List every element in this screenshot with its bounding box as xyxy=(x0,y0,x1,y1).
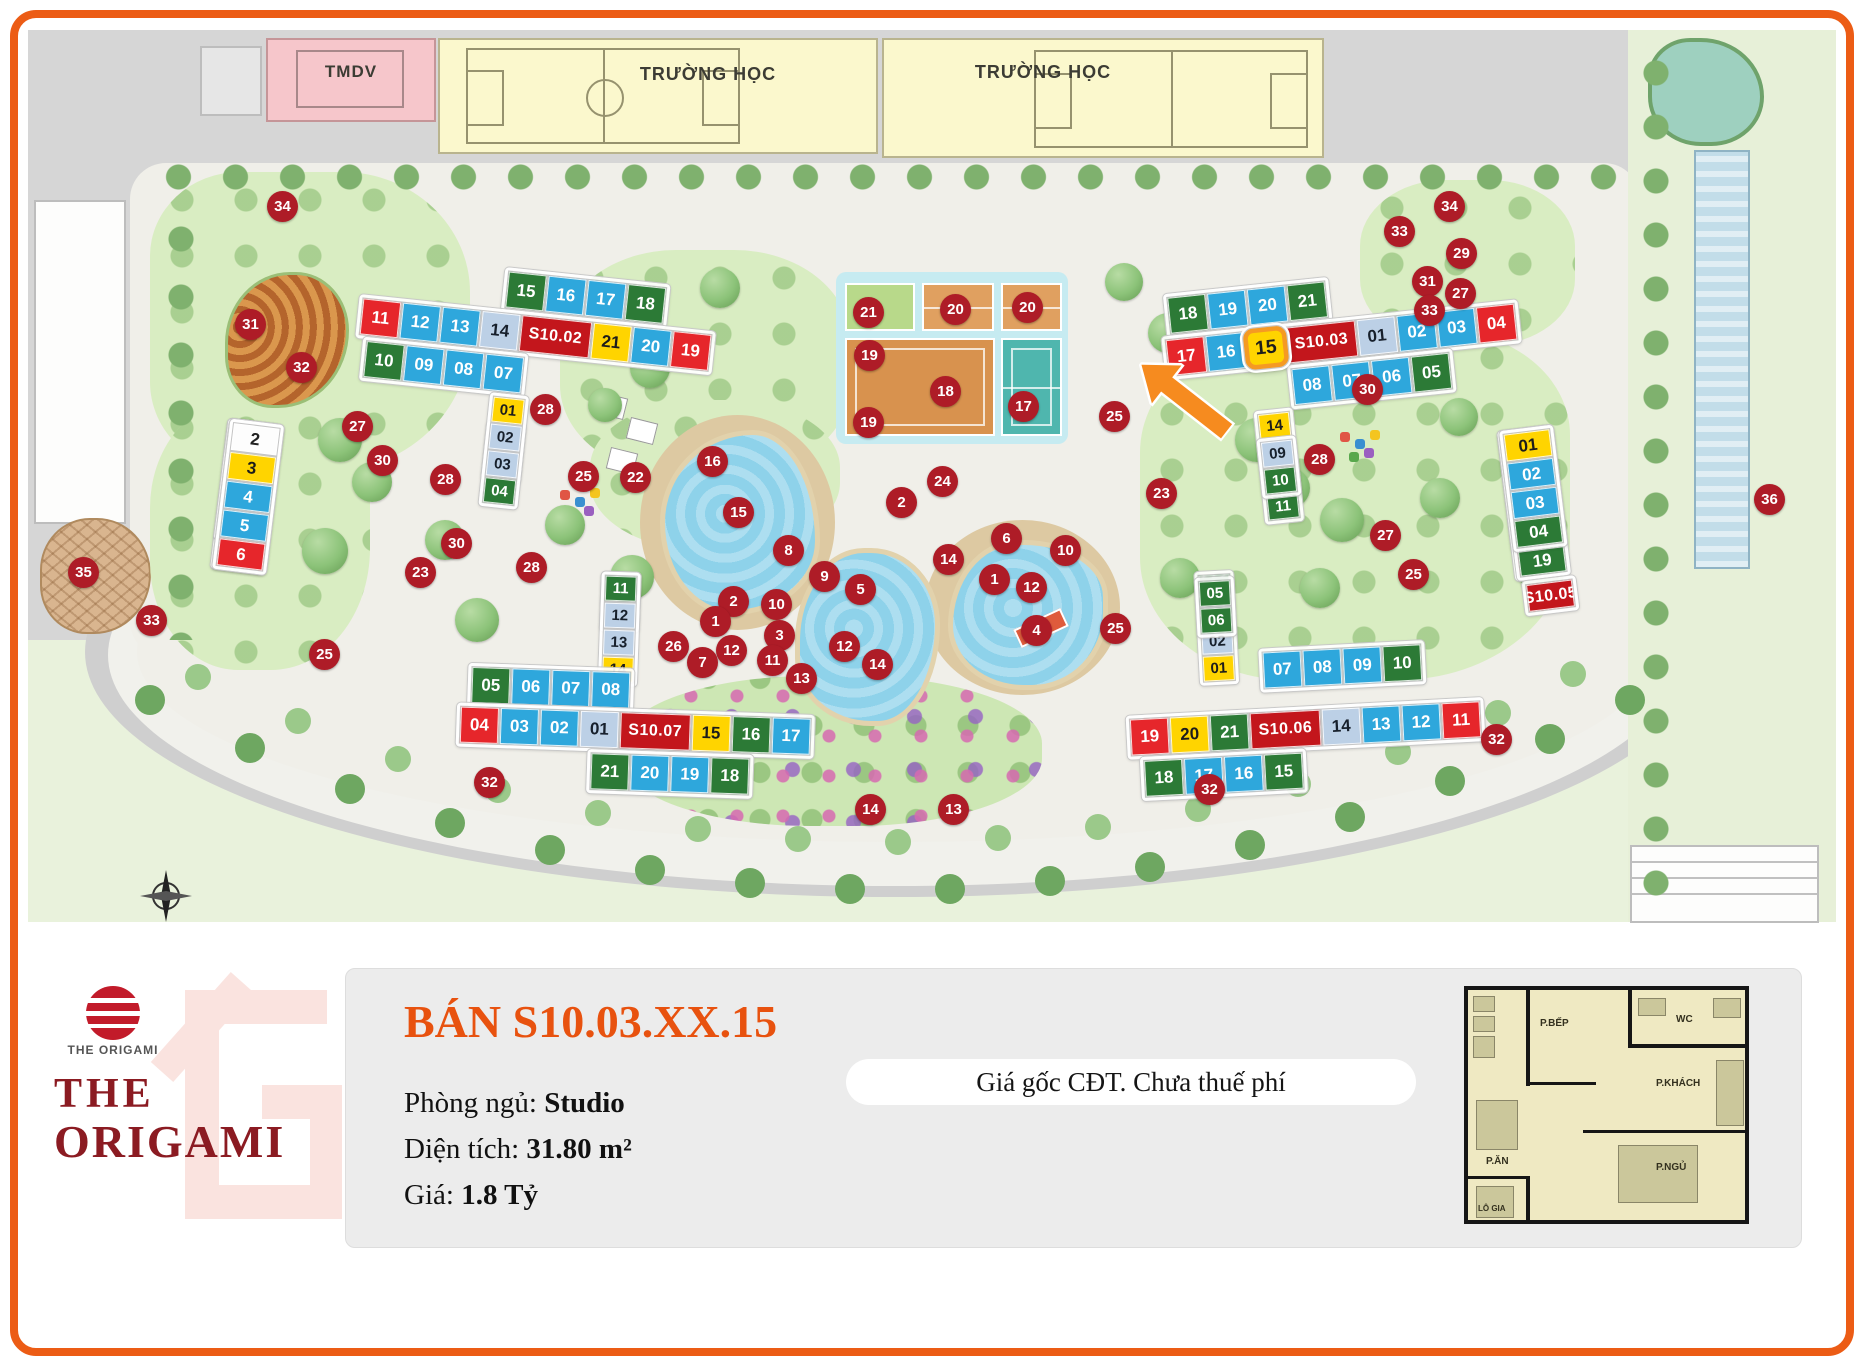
amenity-marker: 33 xyxy=(1414,295,1445,326)
unit-cell[interactable]: 12 xyxy=(604,603,636,629)
tree xyxy=(700,268,740,308)
unit-cell[interactable]: 03 xyxy=(1511,487,1560,519)
unit-cell[interactable]: 10 xyxy=(363,341,405,381)
amenity-marker: 24 xyxy=(927,466,958,497)
zone-school-1: TRƯỜNG HỌC xyxy=(438,38,878,154)
amenity-marker: 32 xyxy=(1194,774,1225,805)
field-label: Diện tích: xyxy=(404,1133,526,1165)
amenity-marker: 20 xyxy=(1012,292,1043,323)
unit-cell[interactable]: 16 xyxy=(1224,755,1264,793)
unit-cell[interactable]: 18 xyxy=(710,757,749,794)
room-label-bedroom: P.NGỦ xyxy=(1656,1162,1686,1173)
unit-cell[interactable]: 12 xyxy=(399,303,441,343)
amenity-marker: 11 xyxy=(757,645,788,676)
unit-cell[interactable]: 08 xyxy=(443,349,485,389)
field-label: Giá: xyxy=(404,1179,461,1211)
unit-cell[interactable]: 15 xyxy=(1242,325,1289,370)
unit-cell[interactable]: S10.06 xyxy=(1250,710,1322,750)
amenity-marker: 35 xyxy=(68,557,99,588)
zone-tmdv: TMDV xyxy=(266,38,436,122)
amenity-marker: 25 xyxy=(568,461,599,492)
unit-cell[interactable]: 17 xyxy=(585,280,627,320)
amenity-marker: 28 xyxy=(430,464,461,495)
amenity-marker: 33 xyxy=(1384,216,1415,247)
room-label-dining: P.ĂN xyxy=(1486,1156,1509,1167)
west-lot xyxy=(34,200,126,524)
amenity-marker: 30 xyxy=(1352,374,1383,405)
floorplan-thumbnail[interactable]: P.BẾP WC P.KHÁCH P.ĂN P.NGỦ LÔ GIA xyxy=(1464,986,1749,1224)
amenity-marker: 28 xyxy=(530,394,561,425)
page: TMDV TRƯỜNG HỌC TRƯỜNG HỌC xyxy=(0,0,1864,1366)
lagoon-pool-east xyxy=(948,540,1108,690)
amenity-marker: 31 xyxy=(1412,266,1443,297)
unit-cell[interactable]: 10 xyxy=(1382,644,1422,682)
amenity-marker: 14 xyxy=(933,544,964,575)
unit-cell[interactable]: 05 xyxy=(1411,353,1453,393)
amenity-marker: 26 xyxy=(658,631,689,662)
origami-logo-icon xyxy=(86,986,140,1040)
unit-cell[interactable]: 15 xyxy=(691,715,730,752)
north-west-lot xyxy=(200,46,262,116)
listing-panel: BÁN S10.03.XX.15 Phòng ngủ: Studio Diện … xyxy=(345,968,1802,1248)
listing-field: Phòng ngủ: Studio xyxy=(404,1087,625,1120)
room-label-kitchen: P.BẾP xyxy=(1540,1018,1569,1029)
unit-cell[interactable]: 08 xyxy=(1302,648,1342,686)
logo-small-text: THE ORIGAMI xyxy=(42,1044,184,1057)
unit-cell[interactable]: 07 xyxy=(483,354,525,394)
unit-cell[interactable]: 19 xyxy=(670,756,709,793)
amenity-marker: 28 xyxy=(1304,444,1335,475)
tree-row-west xyxy=(166,210,196,640)
field-value: Studio xyxy=(544,1087,625,1119)
tree-row-east xyxy=(1634,46,1678,902)
unit-cell[interactable]: 06 xyxy=(511,668,550,705)
amenity-marker: 14 xyxy=(862,649,893,680)
amenity-marker: 30 xyxy=(441,528,472,559)
unit-cell[interactable]: 08 xyxy=(1291,365,1333,405)
school-1-label: TRƯỜNG HỌC xyxy=(540,64,876,85)
listing-field: Giá: 1.8 Tỷ xyxy=(404,1179,538,1212)
amenity-marker: 25 xyxy=(309,639,340,670)
field-label: Phòng ngủ: xyxy=(404,1087,544,1119)
amenity-marker: 31 xyxy=(235,309,266,340)
unit-cell[interactable]: 4 xyxy=(224,481,273,513)
unit-cell[interactable]: 07 xyxy=(551,670,590,707)
unit-cell[interactable]: 02 xyxy=(1507,458,1556,490)
unit-cell[interactable]: 19 xyxy=(1207,290,1249,330)
unit-cell[interactable]: 02 xyxy=(540,709,579,746)
price-note-pill: Giá gốc CĐT. Chưa thuế phí xyxy=(846,1059,1416,1105)
unit-cell[interactable]: 13 xyxy=(439,307,481,347)
unit-cell[interactable]: 04 xyxy=(1476,304,1518,344)
tree xyxy=(545,505,585,545)
tree-arc-outer xyxy=(135,685,165,715)
tennis-court xyxy=(1001,338,1062,436)
room-label-wc: WC xyxy=(1676,1014,1693,1025)
unit-cell[interactable]: 15 xyxy=(1264,753,1304,791)
unit-cell[interactable]: S10.02 xyxy=(519,315,592,358)
unit-cell[interactable]: 04 xyxy=(460,707,499,744)
unit-cell[interactable]: 01 xyxy=(1504,429,1553,461)
amenity-marker: 12 xyxy=(829,631,860,662)
unit-cell[interactable]: 01 xyxy=(580,711,619,748)
logo-word-the: THE xyxy=(54,1070,285,1118)
amenity-marker: 25 xyxy=(1100,613,1131,644)
unit-cell[interactable]: 16 xyxy=(1205,332,1247,372)
unit-cell[interactable]: 18 xyxy=(1144,759,1184,797)
amenity-marker: 21 xyxy=(853,297,884,328)
compass-rose xyxy=(138,868,194,924)
amenity-marker: 18 xyxy=(930,376,961,407)
unit-cell[interactable]: 20 xyxy=(1247,286,1289,326)
amenity-marker: 32 xyxy=(474,767,505,798)
field-value: 1.8 Tỷ xyxy=(461,1179,538,1211)
amenity-marker: 27 xyxy=(342,411,373,442)
unit-cell[interactable]: 20 xyxy=(630,327,672,367)
unit-cell[interactable]: 21 xyxy=(590,753,629,790)
unit-cell[interactable]: 12 xyxy=(1401,703,1441,741)
unit-cell[interactable]: 11 xyxy=(360,298,402,338)
unit-cell[interactable]: 18 xyxy=(625,284,667,324)
unit-cell[interactable]: 02 xyxy=(488,423,521,451)
unit-cell[interactable]: 14 xyxy=(479,311,521,351)
unit-cell[interactable]: 01 xyxy=(491,397,524,425)
east-water-channel xyxy=(1694,150,1750,569)
tree xyxy=(1105,263,1143,301)
amenity-marker: 6 xyxy=(991,523,1022,554)
unit-cell[interactable]: 04 xyxy=(483,477,516,505)
amenity-marker: 29 xyxy=(1446,238,1477,269)
amenity-marker: 36 xyxy=(1754,484,1785,515)
unit-cell[interactable]: 17 xyxy=(771,718,810,755)
unit-cell[interactable]: 04 xyxy=(1514,515,1563,547)
brand-block: THE ORIGAMI THE ORIGAMI xyxy=(42,952,342,1257)
unit-cell[interactable]: 14 xyxy=(1321,708,1361,746)
amenity-marker: 12 xyxy=(716,635,747,666)
amenity-marker: 13 xyxy=(786,663,817,694)
amenity-marker: 5 xyxy=(845,574,876,605)
amenity-marker: 1 xyxy=(979,564,1010,595)
unit-cell[interactable]: 11 xyxy=(1441,701,1481,739)
unit-cell[interactable]: 21 xyxy=(590,323,632,363)
unit-cell[interactable]: S10.03 xyxy=(1285,320,1358,363)
room-label-living: P.KHÁCH xyxy=(1656,1078,1700,1089)
unit-cell[interactable]: 15 xyxy=(505,272,547,312)
amenity-marker: 4 xyxy=(1021,615,1052,646)
amenity-marker: 34 xyxy=(267,191,298,222)
amenity-marker: 2 xyxy=(886,487,917,518)
amenity-marker: 23 xyxy=(405,557,436,588)
unit-cell[interactable]: 03 xyxy=(486,450,519,478)
amenity-marker: 17 xyxy=(1008,391,1039,422)
amenity-marker: 27 xyxy=(1445,278,1476,309)
building-s10-06: 04030201 0506 07080910 192021S10.0614131… xyxy=(1118,560,1429,800)
unit-cell[interactable]: 20 xyxy=(630,755,669,792)
unit-cell[interactable]: 3 xyxy=(227,452,276,484)
amenity-marker: 10 xyxy=(761,589,792,620)
amenity-marker: 23 xyxy=(1146,478,1177,509)
amenity-marker: 34 xyxy=(1434,191,1465,222)
amenity-marker: 8 xyxy=(773,535,804,566)
logo-wordmark: THE ORIGAMI xyxy=(54,1070,285,1166)
unit-cell[interactable]: 13 xyxy=(603,630,635,656)
listing-field: Diện tích: 31.80 m² xyxy=(404,1133,632,1166)
amenity-marker: 19 xyxy=(853,407,884,438)
amenity-marker: 16 xyxy=(697,446,728,477)
amenity-marker: 13 xyxy=(938,794,969,825)
field-value: 31.80 m² xyxy=(526,1133,631,1165)
logo-word-origami: ORIGAMI xyxy=(54,1118,285,1166)
unit-cell[interactable]: 21 xyxy=(1210,713,1250,751)
unit-cell[interactable]: 01 xyxy=(1203,655,1235,682)
unit-cell[interactable]: 6 xyxy=(217,538,266,570)
amenity-marker: 12 xyxy=(1016,572,1047,603)
unit-cell[interactable]: 05 xyxy=(1199,580,1231,607)
amenity-marker: 28 xyxy=(516,552,547,583)
unit-cell[interactable]: 16 xyxy=(545,276,587,316)
amenity-marker: 9 xyxy=(809,561,840,592)
amenity-marker: 32 xyxy=(1481,724,1512,755)
unit-cell[interactable]: 5 xyxy=(220,509,269,541)
amenity-marker: 7 xyxy=(687,647,718,678)
unit-cell[interactable]: 06 xyxy=(1200,607,1232,634)
room-label-balcony: LÔ GIA xyxy=(1478,1204,1506,1213)
unit-cell[interactable]: 11 xyxy=(605,576,637,602)
amenity-marker: 33 xyxy=(136,605,167,636)
building-label: S10.05 xyxy=(1526,580,1575,612)
tree-row-north xyxy=(150,162,1630,192)
unit-cell[interactable]: 2 xyxy=(231,423,280,455)
unit-cell[interactable]: 09 xyxy=(1342,646,1382,684)
unit-cell[interactable]: 10 xyxy=(1264,466,1297,494)
listing-title: BÁN S10.03.XX.15 xyxy=(404,995,777,1048)
site-map: TMDV TRƯỜNG HỌC TRƯỜNG HỌC xyxy=(0,0,1864,952)
unit-cell[interactable]: 19 xyxy=(670,331,712,371)
unit-cell[interactable]: 09 xyxy=(403,345,445,385)
amenity-marker: 1 xyxy=(700,606,731,637)
amenity-marker: 14 xyxy=(855,794,886,825)
unit-cell[interactable]: 09 xyxy=(1261,440,1294,468)
amenity-marker: 15 xyxy=(723,497,754,528)
tmdv-label: TMDV xyxy=(268,62,434,82)
amenity-marker: 20 xyxy=(940,294,971,325)
amenity-marker: 22 xyxy=(620,462,651,493)
unit-cell[interactable]: 08 xyxy=(591,671,630,708)
unit-cell[interactable]: 16 xyxy=(731,716,770,753)
unit-cell[interactable]: S10.07 xyxy=(620,712,691,750)
unit-cell[interactable]: 21 xyxy=(1287,281,1329,321)
unit-cell[interactable]: 13 xyxy=(1361,705,1401,743)
unit-cell[interactable]: 01 xyxy=(1356,316,1398,356)
unit-cell[interactable]: 05 xyxy=(471,667,510,704)
unit-cell[interactable]: 19 xyxy=(1130,718,1170,756)
unit-cell[interactable]: 07 xyxy=(1263,651,1303,689)
amenity-marker: 10 xyxy=(1050,535,1081,566)
amenity-marker: 19 xyxy=(854,340,885,371)
unit-cell[interactable]: 20 xyxy=(1170,716,1210,754)
school-2-label: TRƯỜNG HỌC xyxy=(884,62,1202,83)
unit-cell[interactable]: 18 xyxy=(1167,294,1209,334)
amenity-marker: 27 xyxy=(1370,520,1401,551)
amenity-marker: 25 xyxy=(1099,401,1130,432)
amenity-marker: 32 xyxy=(286,352,317,383)
zone-school-2: TRƯỜNG HỌC xyxy=(882,38,1324,158)
unit-cell[interactable]: 03 xyxy=(500,708,539,745)
amenity-marker: 30 xyxy=(367,445,398,476)
amenity-marker: 25 xyxy=(1398,559,1429,590)
